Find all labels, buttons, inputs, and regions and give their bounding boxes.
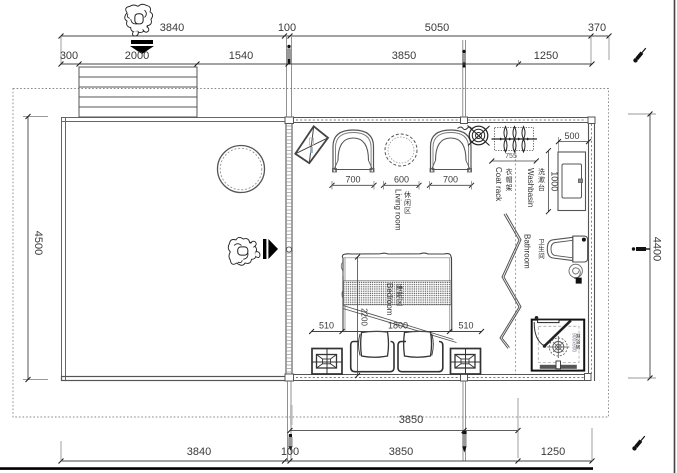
svg-text:370: 370	[588, 22, 606, 34]
svg-text:510: 510	[458, 321, 473, 331]
svg-text:闲: 闲	[404, 198, 411, 207]
svg-text:休: 休	[404, 190, 411, 199]
svg-text:生: 生	[538, 244, 545, 253]
svg-text:3850: 3850	[392, 50, 416, 62]
svg-text:衣: 衣	[506, 167, 513, 176]
svg-text:Bathroom: Bathroom	[523, 234, 532, 269]
svg-text:Bedroom: Bedroom	[385, 283, 394, 316]
svg-text:1540: 1540	[229, 50, 253, 62]
svg-text:3850: 3850	[389, 446, 413, 458]
svg-text:眠: 眠	[396, 292, 403, 300]
svg-text:洗: 洗	[538, 167, 545, 176]
svg-text:Coat rack: Coat rack	[494, 167, 503, 202]
svg-text:1250: 1250	[534, 50, 558, 62]
svg-text:3840: 3840	[187, 446, 211, 458]
svg-text:Living room: Living room	[394, 189, 403, 231]
svg-text:房: 房	[575, 344, 580, 351]
svg-text:100: 100	[281, 446, 299, 458]
svg-text:台: 台	[538, 183, 545, 192]
svg-text:700: 700	[443, 175, 458, 185]
svg-text:2200: 2200	[360, 308, 369, 326]
svg-text:755: 755	[505, 153, 517, 160]
svg-text:600: 600	[394, 175, 409, 185]
svg-text:睡: 睡	[396, 284, 403, 292]
svg-text:1800: 1800	[388, 321, 408, 331]
svg-text:卫: 卫	[538, 238, 545, 246]
svg-text:1000: 1000	[550, 171, 560, 191]
svg-text:间: 间	[538, 252, 545, 260]
svg-text:4500: 4500	[32, 231, 44, 255]
svg-text:100: 100	[278, 22, 296, 34]
svg-text:3850: 3850	[399, 414, 423, 426]
svg-text:1250: 1250	[541, 446, 565, 458]
svg-text:漱: 漱	[538, 175, 545, 184]
svg-text:架: 架	[506, 184, 513, 192]
svg-text:Washbasin: Washbasin	[526, 168, 535, 207]
svg-text:5050: 5050	[425, 22, 449, 34]
svg-text:500: 500	[564, 131, 579, 141]
svg-text:帽: 帽	[506, 175, 513, 184]
svg-text:510: 510	[319, 321, 334, 331]
svg-text:2000: 2000	[125, 50, 149, 62]
svg-text:4400: 4400	[651, 237, 663, 261]
svg-text:3840: 3840	[160, 22, 184, 34]
svg-text:700: 700	[345, 175, 360, 185]
svg-text:区: 区	[396, 299, 403, 307]
svg-text:区: 区	[404, 207, 411, 215]
svg-text:300: 300	[60, 50, 78, 62]
